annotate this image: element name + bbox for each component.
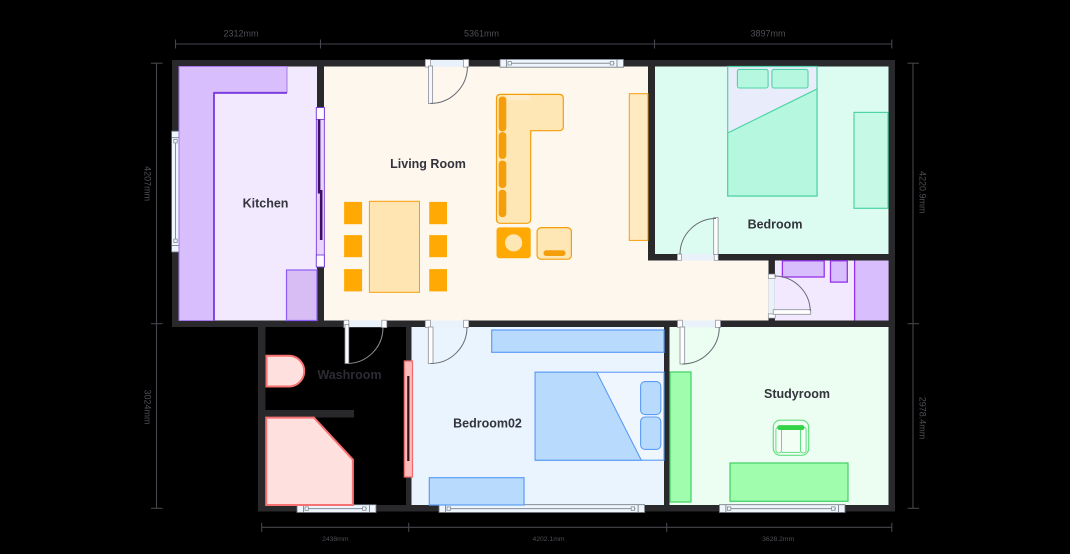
svg-text:4202.1mm: 4202.1mm (532, 536, 564, 543)
svg-text:5361mm: 5361mm (464, 29, 499, 39)
svg-text:3897mm: 3897mm (750, 29, 785, 39)
svg-text:2978.4mm: 2978.4mm (918, 397, 928, 440)
svg-text:Bedroom: Bedroom (748, 218, 803, 232)
svg-text:2312mm: 2312mm (223, 29, 258, 39)
svg-text:3024mm: 3024mm (143, 389, 153, 424)
svg-text:Washroom: Washroom (317, 368, 381, 382)
svg-text:Studyroom: Studyroom (764, 387, 830, 401)
svg-text:4207mm: 4207mm (143, 166, 153, 201)
svg-text:4220.9mm: 4220.9mm (918, 171, 928, 214)
svg-text:Living Room: Living Room (390, 157, 466, 171)
svg-text:2438mm: 2438mm (322, 536, 349, 543)
svg-text:Kitchen: Kitchen (243, 197, 289, 211)
svg-text:3628.2mm: 3628.2mm (762, 536, 794, 543)
svg-text:Bedroom02: Bedroom02 (453, 417, 522, 431)
